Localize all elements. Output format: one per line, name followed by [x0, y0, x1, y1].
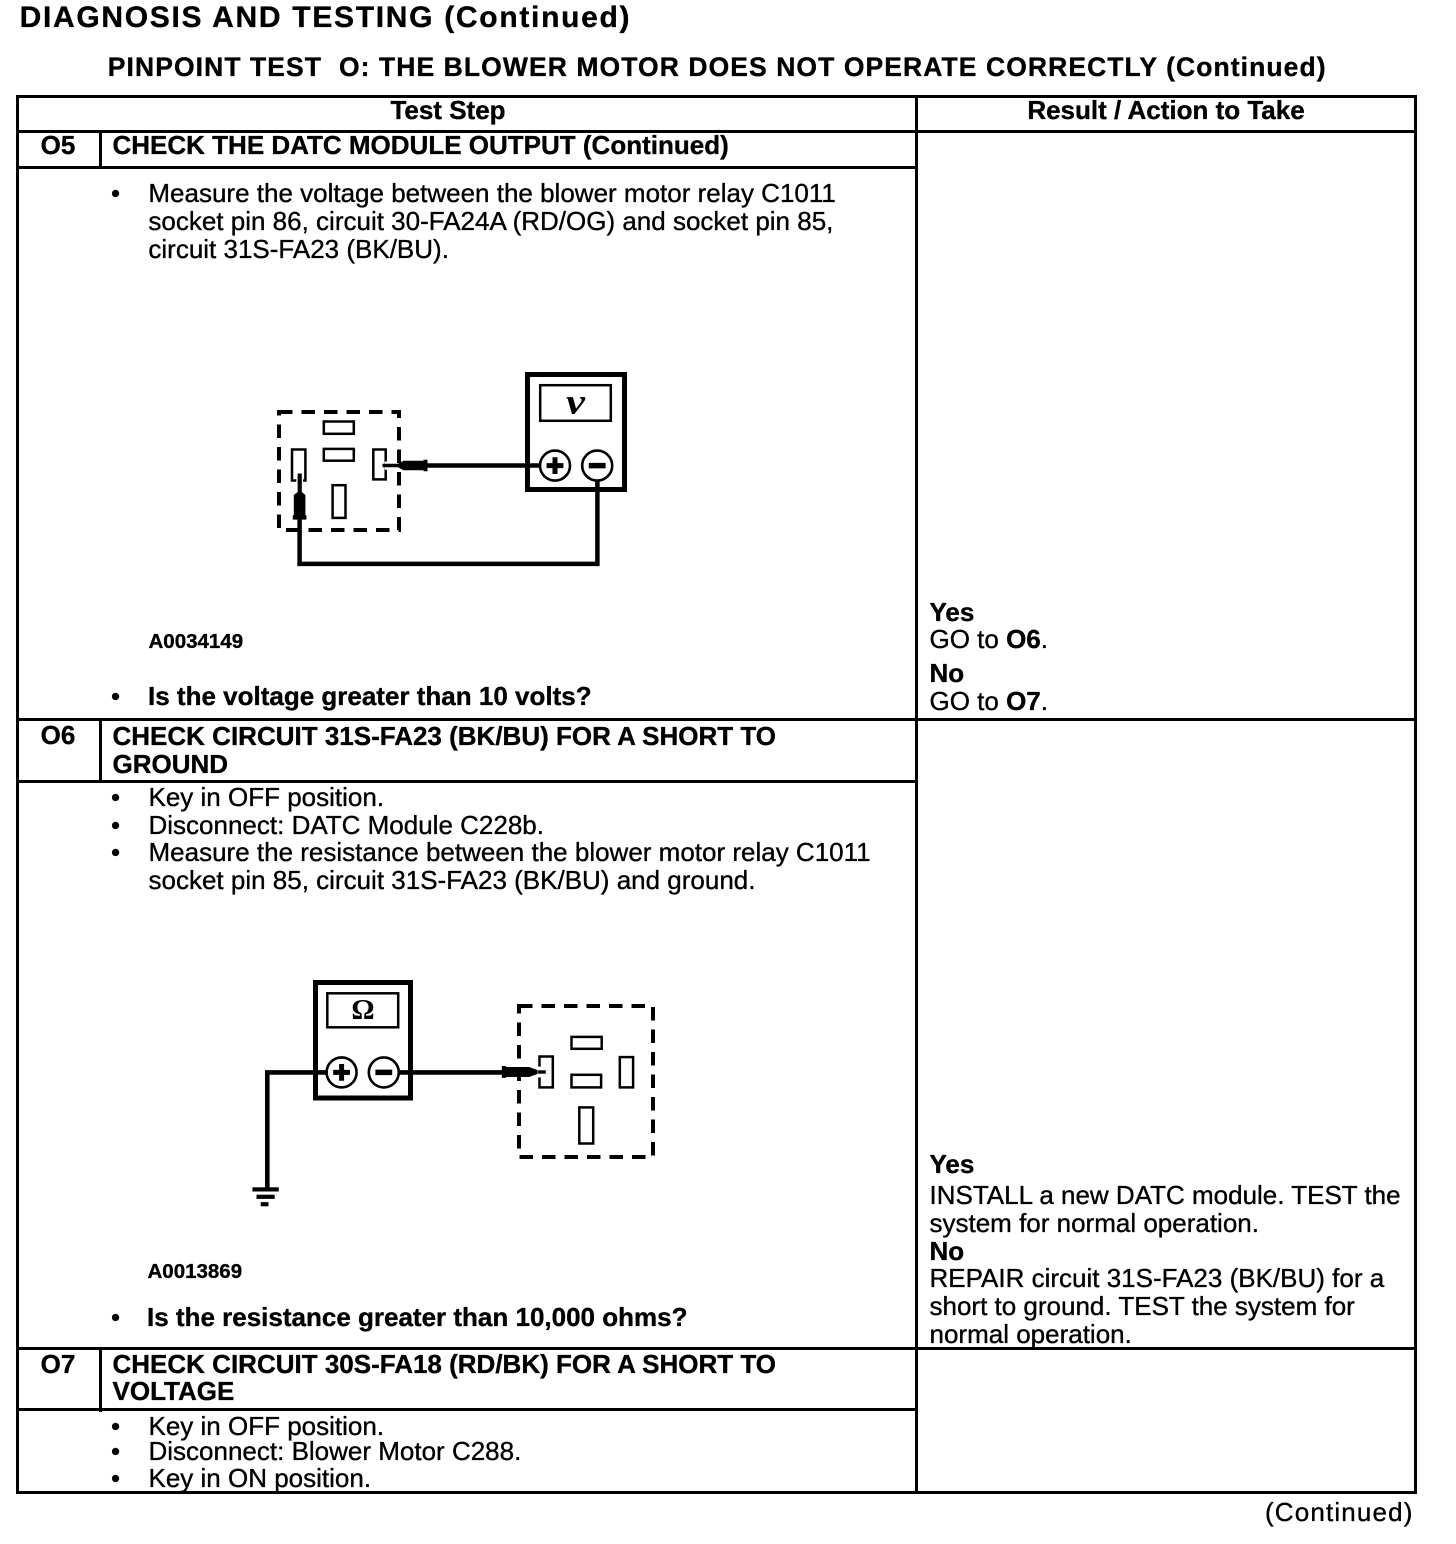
svg-text:v: v [566, 382, 586, 422]
svg-text:Ω: Ω [351, 994, 374, 1026]
